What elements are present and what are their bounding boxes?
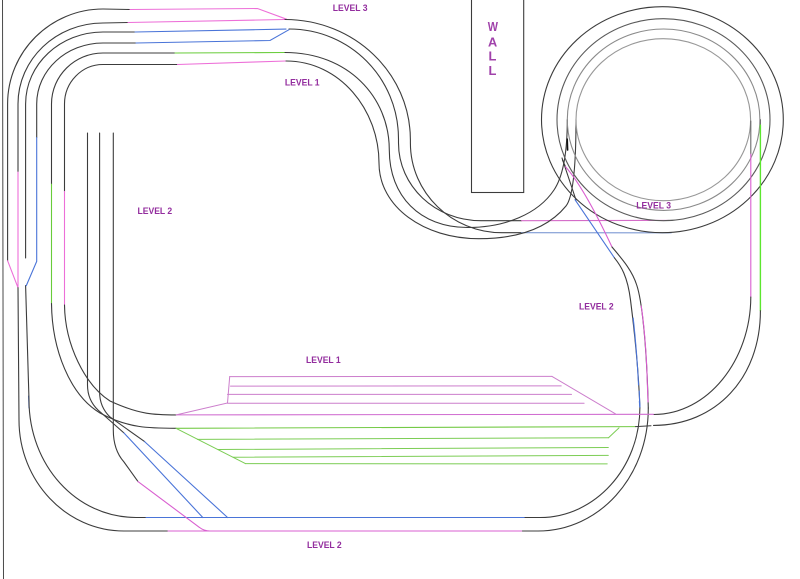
svg-text:L: L (489, 48, 497, 63)
svg-text:LEVEL 2: LEVEL 2 (138, 206, 173, 217)
svg-text:L: L (489, 63, 497, 78)
svg-text:LEVEL 3: LEVEL 3 (636, 201, 671, 212)
svg-text:W: W (488, 19, 499, 34)
svg-text:LEVEL 2: LEVEL 2 (307, 540, 342, 551)
svg-text:LEVEL 1: LEVEL 1 (306, 355, 341, 366)
svg-text:LEVEL 3: LEVEL 3 (333, 3, 368, 14)
svg-text:LEVEL 2: LEVEL 2 (579, 301, 614, 312)
svg-text:LEVEL 1: LEVEL 1 (285, 77, 320, 88)
